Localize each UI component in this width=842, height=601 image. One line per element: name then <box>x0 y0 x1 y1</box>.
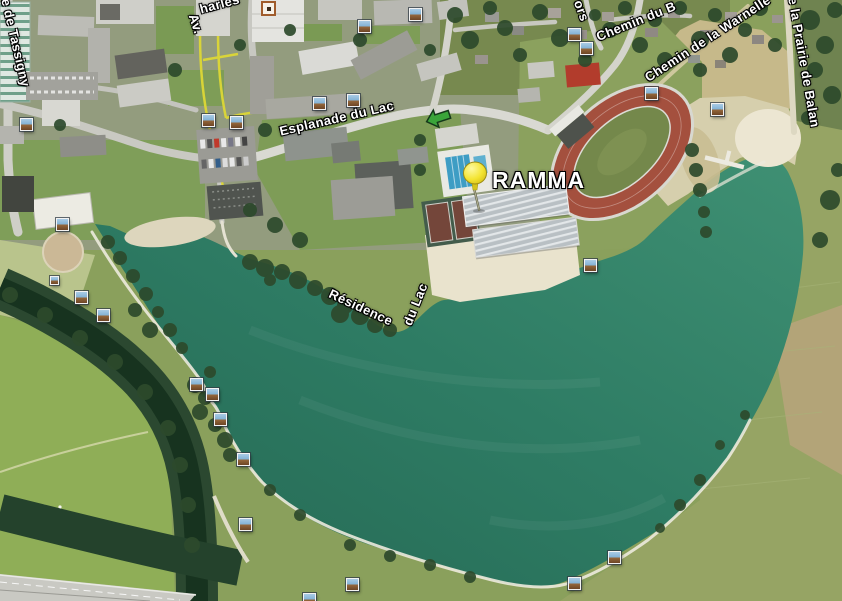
photo-icon[interactable] <box>230 116 243 129</box>
photo-icon[interactable] <box>50 276 59 285</box>
photo-icon[interactable] <box>20 118 33 131</box>
photo-icon[interactable] <box>580 42 593 55</box>
parking-lot <box>196 126 258 184</box>
photo-icon[interactable] <box>711 103 724 116</box>
photo-icon[interactable] <box>608 551 621 564</box>
photo-icon[interactable] <box>56 218 69 231</box>
photo-icon[interactable] <box>645 87 658 100</box>
photo-icon[interactable] <box>239 518 252 531</box>
photo-icon[interactable] <box>346 578 359 591</box>
map-viewport[interactable]: RAMMA Esplanade du Lac Résidence du Lac … <box>0 0 842 601</box>
photo-icon[interactable] <box>584 259 597 272</box>
photo-icon[interactable] <box>190 378 203 391</box>
photo-icon[interactable] <box>214 413 227 426</box>
poi-dot-icon[interactable] <box>261 1 276 16</box>
photo-icon[interactable] <box>568 577 581 590</box>
direction-arrow-icon[interactable] <box>424 106 452 130</box>
photo-icon[interactable] <box>75 291 88 304</box>
photo-icon[interactable] <box>358 20 371 33</box>
photo-icon[interactable] <box>409 8 422 21</box>
photo-icon[interactable] <box>206 388 219 401</box>
photo-icon[interactable] <box>202 114 215 127</box>
photo-icon[interactable] <box>237 453 250 466</box>
photo-icon[interactable] <box>303 593 316 601</box>
photo-icon[interactable] <box>313 97 326 110</box>
photo-icon[interactable] <box>568 28 581 41</box>
photo-icon[interactable] <box>97 309 110 322</box>
ramma-label: RAMMA <box>492 167 585 194</box>
